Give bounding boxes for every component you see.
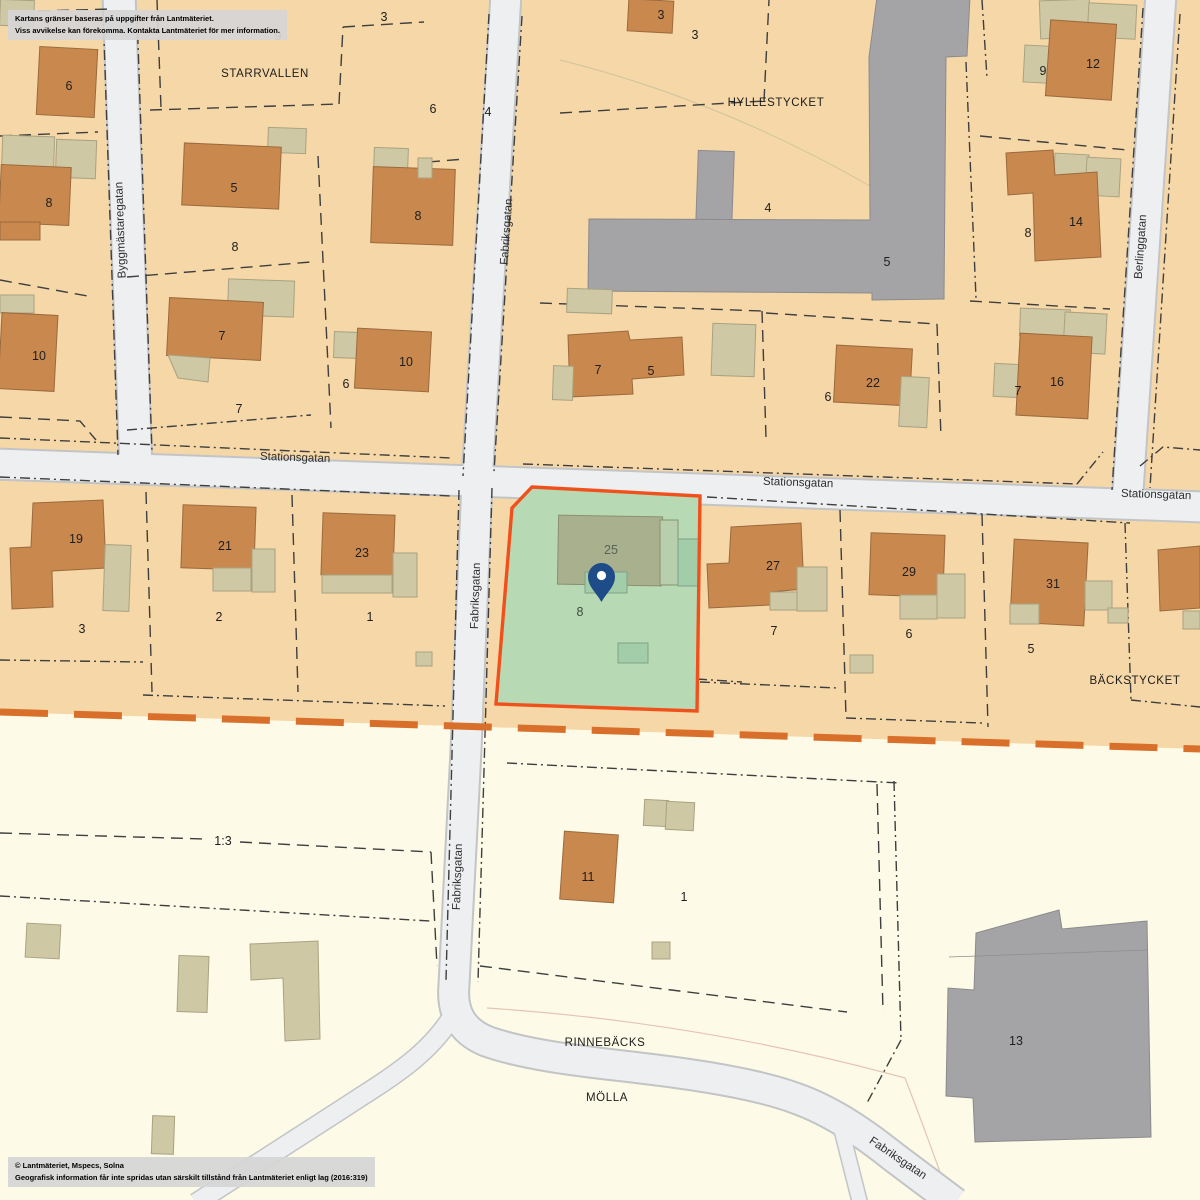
building-number: 27 bbox=[766, 559, 780, 573]
selected-annex bbox=[678, 539, 699, 586]
building-footprint bbox=[1085, 581, 1112, 610]
building-footprint bbox=[1183, 611, 1200, 629]
building-footprint bbox=[0, 295, 34, 313]
building-number: 10 bbox=[32, 349, 46, 363]
lot-number: 2 bbox=[216, 610, 223, 624]
building-number: 21 bbox=[218, 539, 232, 553]
building-footprint bbox=[797, 567, 827, 611]
building-number: 5 bbox=[231, 181, 238, 195]
building-footprint bbox=[627, 0, 674, 33]
building-footprint bbox=[552, 366, 573, 401]
building-footprint bbox=[0, 222, 40, 240]
building-footprint bbox=[0, 313, 58, 392]
building-number: 22 bbox=[866, 376, 880, 390]
building-number: 8 bbox=[415, 209, 422, 223]
map-view: 9 3 6 8 10 5 8 7 7 6 10 6 4 8 3 3 4 5 9 … bbox=[0, 0, 1200, 1200]
building-number: 13 bbox=[1009, 1034, 1023, 1048]
lot-number: 8 bbox=[1025, 226, 1032, 240]
building-number: 31 bbox=[1046, 577, 1060, 591]
lot-number: 3 bbox=[692, 28, 699, 42]
building-footprint bbox=[182, 143, 282, 209]
building-footprint bbox=[1010, 604, 1039, 624]
building-footprint bbox=[371, 167, 456, 246]
building-number: 5 bbox=[648, 364, 655, 378]
lot-number: 4 bbox=[485, 105, 492, 119]
building-footprint bbox=[418, 158, 432, 178]
area-name: STARRVALLEN bbox=[221, 68, 309, 80]
building-footprint bbox=[393, 553, 417, 597]
building-number: 23 bbox=[355, 546, 369, 560]
building-footprint bbox=[652, 942, 670, 959]
building-footprint bbox=[643, 799, 668, 826]
building-footprint bbox=[770, 592, 797, 610]
area-name: RINNEBÄCKS bbox=[565, 1037, 646, 1049]
building-footprint bbox=[25, 923, 61, 959]
building-footprint bbox=[665, 801, 694, 830]
area-name: HYLLESTYCKET bbox=[728, 97, 825, 109]
selected-property[interactable] bbox=[496, 487, 700, 711]
lot-number: 7 bbox=[771, 624, 778, 638]
lot-number: 6 bbox=[343, 377, 350, 391]
selected-address-number: 8 bbox=[577, 605, 584, 619]
pin-hole bbox=[597, 571, 606, 580]
map-canvas[interactable]: 9 3 6 8 10 5 8 7 7 6 10 6 4 8 3 3 4 5 9 … bbox=[0, 0, 1200, 1200]
map-attribution-box: © Lantmäteriet, Mspecs, Solna Geografisk… bbox=[8, 1157, 375, 1187]
street-name: Fabriksgatan bbox=[469, 562, 483, 629]
lot-number: 1 bbox=[681, 890, 688, 904]
building-footprint bbox=[103, 545, 131, 612]
building-number: 10 bbox=[399, 355, 413, 369]
building-footprint bbox=[899, 376, 930, 427]
lot-number: 5 bbox=[1028, 642, 1035, 656]
building-footprint bbox=[1158, 546, 1200, 611]
area-name: MÖLLA bbox=[586, 1092, 628, 1104]
selected-outbuilding bbox=[618, 643, 648, 663]
building-number: 11 bbox=[582, 870, 595, 884]
map-disclaimer-box: Kartans gränser baseras på uppgifter frå… bbox=[8, 10, 287, 40]
building-number: 14 bbox=[1069, 215, 1083, 229]
building-footprint bbox=[416, 652, 432, 666]
lot-number: 5 bbox=[884, 255, 891, 269]
street-name: Stationsgatan bbox=[763, 476, 834, 490]
building-footprint bbox=[167, 298, 264, 361]
building-footprint bbox=[560, 831, 619, 903]
building-footprint bbox=[151, 1116, 174, 1155]
building-number: 7 bbox=[595, 363, 602, 377]
building-footprint bbox=[1020, 308, 1071, 337]
lot-number: 3 bbox=[79, 622, 86, 636]
building-footprint bbox=[1108, 608, 1128, 623]
building-number: 12 bbox=[1086, 57, 1100, 71]
building-number: 9 bbox=[1040, 64, 1047, 78]
lot-number: 7 bbox=[236, 402, 243, 416]
lot-number: 6 bbox=[906, 627, 913, 641]
disclaimer-line1: Kartans gränser baseras på uppgifter frå… bbox=[15, 13, 280, 25]
building-footprint bbox=[900, 595, 937, 619]
selected-building-wing bbox=[660, 520, 678, 585]
disclaimer-line2: Viss avvikelse kan förekomma. Kontakta L… bbox=[15, 25, 280, 37]
building-footprint bbox=[937, 574, 965, 618]
building-number: 19 bbox=[69, 532, 83, 546]
lot-number: 6 bbox=[430, 102, 437, 116]
street-name: Fabriksgatan bbox=[451, 843, 465, 910]
area-name: BÄCKSTYCKET bbox=[1090, 675, 1181, 687]
lot-number: 3 bbox=[381, 10, 388, 24]
street-name: Stationsgatan bbox=[1121, 488, 1192, 502]
attribution-line2: Geografisk information får inte spridas … bbox=[15, 1172, 368, 1184]
building-number: 3 bbox=[658, 8, 665, 22]
lot-number: 4 bbox=[765, 201, 772, 215]
building-footprint bbox=[252, 549, 275, 592]
building-footprint bbox=[1045, 20, 1116, 100]
building-footprint bbox=[850, 655, 873, 673]
street-name: Stationsgatan bbox=[260, 451, 331, 465]
building-footprint bbox=[946, 910, 1151, 1142]
lot-number: 7 bbox=[1015, 384, 1022, 398]
lot-number: 1 bbox=[367, 610, 374, 624]
building-number: 8 bbox=[46, 196, 53, 210]
lot-number: 6 bbox=[825, 390, 832, 404]
building-footprint bbox=[0, 165, 71, 226]
building-number: 6 bbox=[66, 79, 73, 93]
building-footprint bbox=[567, 288, 613, 314]
parcel-reference: 1:3 bbox=[214, 834, 231, 848]
building-number: 16 bbox=[1050, 375, 1064, 389]
selected-building-number: 25 bbox=[604, 543, 618, 557]
building-footprint bbox=[354, 328, 431, 392]
building-footprint bbox=[322, 575, 392, 593]
building-footprint bbox=[177, 955, 209, 1012]
attribution-line1: © Lantmäteriet, Mspecs, Solna bbox=[15, 1160, 368, 1172]
building-footprint bbox=[181, 505, 256, 571]
building-footprint bbox=[213, 568, 251, 591]
building-footprint bbox=[711, 323, 756, 376]
building-number: 7 bbox=[219, 329, 226, 343]
building-footprint bbox=[696, 150, 735, 228]
lot-number: 8 bbox=[232, 240, 239, 254]
building-number: 29 bbox=[902, 565, 916, 579]
building-footprint bbox=[321, 513, 395, 577]
